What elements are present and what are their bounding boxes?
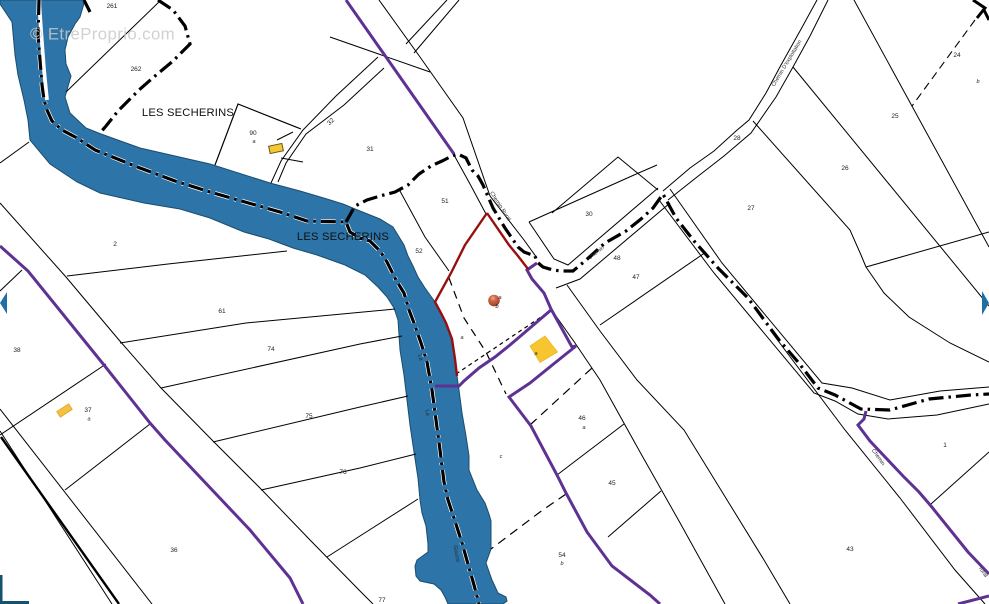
- svg-text:77: 77: [378, 597, 386, 604]
- svg-text:74: 74: [267, 346, 275, 353]
- svg-text:36: 36: [170, 547, 178, 554]
- svg-text:52: 52: [415, 248, 423, 255]
- svg-text:26: 26: [841, 165, 849, 172]
- svg-text:46: 46: [578, 415, 586, 422]
- svg-text:38: 38: [13, 347, 21, 354]
- svg-text:b: b: [495, 304, 498, 310]
- svg-text:1: 1: [943, 442, 947, 449]
- svg-text:37: 37: [84, 407, 92, 414]
- svg-text:48: 48: [613, 255, 621, 262]
- svg-text:a: a: [252, 139, 255, 145]
- svg-text:262: 262: [131, 66, 142, 73]
- svg-text:261: 261: [107, 3, 118, 10]
- svg-text:LES SECHERINS: LES SECHERINS: [297, 231, 389, 243]
- svg-text:75: 75: [305, 413, 313, 420]
- svg-text:27: 27: [747, 205, 755, 212]
- svg-text:a: a: [460, 335, 463, 341]
- svg-text:LES SECHERINS: LES SECHERINS: [142, 107, 234, 119]
- svg-text:a: a: [498, 295, 501, 301]
- svg-text:a: a: [534, 351, 537, 357]
- svg-text:25: 25: [891, 113, 899, 120]
- svg-text:b: b: [560, 561, 563, 567]
- svg-text:31: 31: [366, 146, 374, 153]
- svg-text:43: 43: [846, 546, 854, 553]
- svg-text:a: a: [87, 417, 90, 423]
- svg-text:© EtreProprio.com: © EtreProprio.com: [30, 24, 175, 43]
- svg-text:90: 90: [249, 130, 257, 137]
- svg-text:24: 24: [953, 52, 961, 59]
- svg-text:76: 76: [339, 469, 347, 476]
- svg-text:28: 28: [733, 135, 741, 142]
- svg-text:45: 45: [608, 480, 616, 487]
- svg-text:61: 61: [218, 308, 226, 315]
- svg-text:47: 47: [632, 274, 640, 281]
- svg-text:2: 2: [113, 241, 117, 248]
- svg-text:a: a: [582, 425, 585, 431]
- svg-text:30: 30: [585, 211, 593, 218]
- svg-text:c: c: [500, 454, 503, 460]
- svg-text:b: b: [976, 79, 979, 85]
- svg-text:51: 51: [441, 198, 449, 205]
- svg-text:54: 54: [558, 552, 566, 559]
